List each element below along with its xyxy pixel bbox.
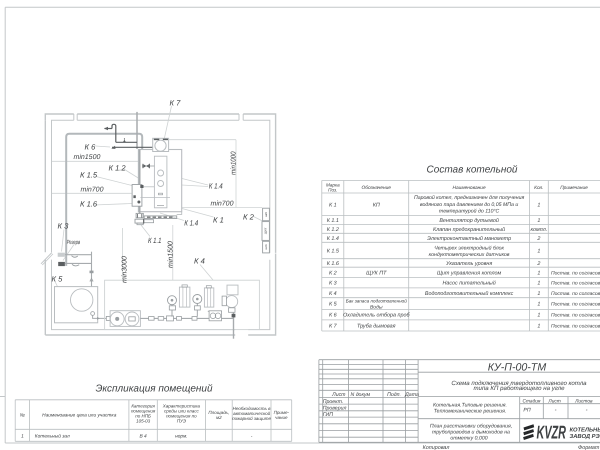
svg-text:1: 1 <box>537 218 540 224</box>
svg-text:К 1.5: К 1.5 <box>327 249 340 255</box>
svg-text:Листов: Листов <box>574 398 593 404</box>
svg-text:Постав. по согласов.: Постав. по согласов. <box>551 270 600 276</box>
svg-text:Щит управления котлом: Щит управления котлом <box>437 270 502 276</box>
svg-text:К 4: К 4 <box>329 291 337 297</box>
svg-text:Формат А3: Формат А3 <box>578 445 600 450</box>
svg-text:м2: м2 <box>216 415 222 420</box>
svg-text:В 4: В 4 <box>139 433 147 439</box>
svg-text:водяного пара давлением до 0,0: водяного пара давлением до 0,05 МПа и <box>420 202 518 208</box>
svg-text:К 1: К 1 <box>213 216 224 225</box>
svg-text:отметку 0,000: отметку 0,000 <box>450 436 487 442</box>
svg-text:К 1.4: К 1.4 <box>327 236 339 242</box>
svg-text:1: 1 <box>537 313 540 319</box>
svg-text:К 1.4: К 1.4 <box>209 182 223 191</box>
svg-text:N докум: N докум <box>351 392 371 398</box>
svg-text:Клапан предохранительный: Клапан предохранительный <box>433 227 505 233</box>
svg-text:КП: КП <box>373 203 380 209</box>
svg-text:температурой до 110°С: температурой до 110°С <box>439 208 500 214</box>
svg-text:Постав. по согласов.: Постав. по согласов. <box>551 302 600 308</box>
svg-text:Воды: Воды <box>370 304 383 310</box>
svg-text:типа КП работающего на угле: типа КП работающего на угле <box>473 385 565 392</box>
svg-text:ЩУК: ЩУК <box>264 228 268 235</box>
svg-text:min1500: min1500 <box>74 153 101 161</box>
svg-text:1: 1 <box>537 203 540 209</box>
svg-text:Обозначение: Обозначение <box>362 185 392 191</box>
svg-text:Вентилятор дутьевой: Вентилятор дутьевой <box>439 218 499 224</box>
svg-text:Паровой котел, предназначен дл: Паровой котел, предназначен для получени… <box>414 195 525 201</box>
svg-text:шт: шт <box>264 244 268 249</box>
svg-text:компл.: компл. <box>531 227 548 233</box>
svg-text:Дата: Дата <box>404 392 419 398</box>
svg-text:Постав. по согласов.: Постав. по согласов. <box>551 324 600 330</box>
svg-text:Лист: Лист <box>547 398 560 404</box>
svg-text:Указатель уровня: Указатель уровня <box>445 261 492 267</box>
svg-text:К 1: К 1 <box>329 203 337 209</box>
svg-text:Проверил: Проверил <box>323 406 347 412</box>
svg-text:Подп.: Подп. <box>387 392 401 398</box>
svg-text:min1500: min1500 <box>167 241 175 268</box>
svg-text:КУ-П-00-ТМ: КУ-П-00-ТМ <box>488 361 547 373</box>
svg-text:К 5: К 5 <box>52 275 64 284</box>
svg-text:Проект.: Проект. <box>323 399 344 405</box>
svg-text:К 1.1: К 1.1 <box>327 218 339 224</box>
svg-text:Наименование: Наименование <box>453 185 486 191</box>
svg-text:чание: чание <box>275 415 288 420</box>
svg-text:№: № <box>20 413 26 419</box>
svg-text:Постав. по согласов.: Постав. по согласов. <box>551 313 600 319</box>
svg-text:К 7: К 7 <box>170 99 182 108</box>
svg-text:min1000: min1000 <box>230 151 238 175</box>
svg-text:К 1.6: К 1.6 <box>327 261 339 267</box>
svg-text:ПУЭ: ПУЭ <box>177 419 186 424</box>
svg-text:-: - <box>586 408 588 414</box>
svg-text:1: 1 <box>21 433 24 439</box>
svg-text:К 5: К 5 <box>329 302 338 308</box>
svg-text:кондуктометрических датчиков: кондуктометрических датчиков <box>429 252 510 258</box>
svg-text:К 3: К 3 <box>329 281 337 287</box>
svg-text:ЩУК ПТ: ЩУК ПТ <box>366 270 387 276</box>
svg-text:Постав. по согласов.: Постав. по согласов. <box>551 281 600 287</box>
svg-text:К 6: К 6 <box>329 313 337 319</box>
svg-text:К 1.2: К 1.2 <box>109 164 127 173</box>
svg-text:Примечание: Примечание <box>560 185 588 191</box>
svg-text:Лист: Лист <box>331 392 346 398</box>
svg-text:РП: РП <box>523 407 530 413</box>
svg-text:Состав котельной: Состав котельной <box>427 165 518 176</box>
svg-text:1: 1 <box>537 324 540 330</box>
svg-text:Копировал: Копировал <box>423 445 450 450</box>
svg-text:-: - <box>251 434 253 439</box>
svg-text:К 2: К 2 <box>329 270 337 276</box>
svg-text:К 7: К 7 <box>329 324 338 330</box>
svg-text:Бак запаса подготовленной: Бак запаса подготовленной <box>346 299 408 304</box>
svg-text:ЗАВОД РЭП: ЗАВОД РЭП <box>570 433 600 440</box>
svg-text:Котельная.Типовые решения.: Котельная.Типовые решения. <box>433 402 507 408</box>
svg-text:Тепломеханические решения.: Тепломеханические решения. <box>434 409 507 415</box>
svg-text:min700: min700 <box>81 186 104 194</box>
svg-text:К 1.1: К 1.1 <box>148 236 162 245</box>
svg-text:1: 1 <box>537 302 540 308</box>
svg-text:К 1.5: К 1.5 <box>80 171 98 180</box>
svg-text:К 4: К 4 <box>194 257 205 266</box>
svg-text:К 3: К 3 <box>58 222 70 231</box>
svg-text:Четырех электродный блок: Четырех электродный блок <box>434 245 504 251</box>
svg-text:норм.: норм. <box>175 434 188 439</box>
svg-text:1: 1 <box>537 281 540 287</box>
svg-text:Труба дымовая: Труба дымовая <box>357 324 396 330</box>
svg-text:105-03: 105-03 <box>136 419 151 424</box>
svg-text:1: 1 <box>537 249 540 255</box>
svg-text:KVZR: KVZR <box>537 421 567 442</box>
svg-text:К 1.6: К 1.6 <box>80 200 98 209</box>
svg-text:1: 1 <box>537 291 540 297</box>
svg-text:min700: min700 <box>211 200 234 208</box>
svg-text:min3000: min3000 <box>121 256 129 283</box>
svg-text:Стадия: Стадия <box>523 398 541 404</box>
svg-text:1: 1 <box>537 270 540 276</box>
svg-text:КОТЕЛЬНЫЙ: КОТЕЛЬНЫЙ <box>570 426 600 434</box>
svg-text:Кол.: Кол. <box>534 185 543 191</box>
svg-text:К 1.2: К 1.2 <box>327 227 339 233</box>
svg-text:ГИП: ГИП <box>323 412 334 418</box>
svg-text:Экспликация помещений: Экспликация помещений <box>95 384 213 395</box>
svg-text:Резерв: Резерв <box>67 239 81 246</box>
svg-text:Водоподготовительный комплекс: Водоподготовительный комплекс <box>425 291 514 297</box>
svg-text:Электроконтактный манометр: Электроконтактный манометр <box>427 236 511 242</box>
svg-text:Наименование цеха или участка: Наименование цеха или участка <box>42 413 117 419</box>
svg-text:Охладитель отбора проб: Охладитель отбора проб <box>343 313 410 319</box>
svg-text:Постав. по согласов.: Постав. по согласов. <box>551 291 600 297</box>
svg-text:Поз.: Поз. <box>328 188 337 193</box>
svg-text:шт: шт <box>264 212 268 217</box>
svg-text:К 2: К 2 <box>243 213 255 222</box>
svg-text:пожарной защите: пожарной защите <box>232 416 271 421</box>
svg-text:-: - <box>555 408 557 414</box>
svg-text:Насос питательный: Насос питательный <box>442 281 495 287</box>
svg-text:К 6: К 6 <box>85 143 97 152</box>
svg-text:Котельный зал: Котельный зал <box>35 433 70 439</box>
svg-text:К 1.4: К 1.4 <box>184 219 198 228</box>
svg-text:2: 2 <box>536 261 540 267</box>
svg-text:2: 2 <box>536 236 540 242</box>
